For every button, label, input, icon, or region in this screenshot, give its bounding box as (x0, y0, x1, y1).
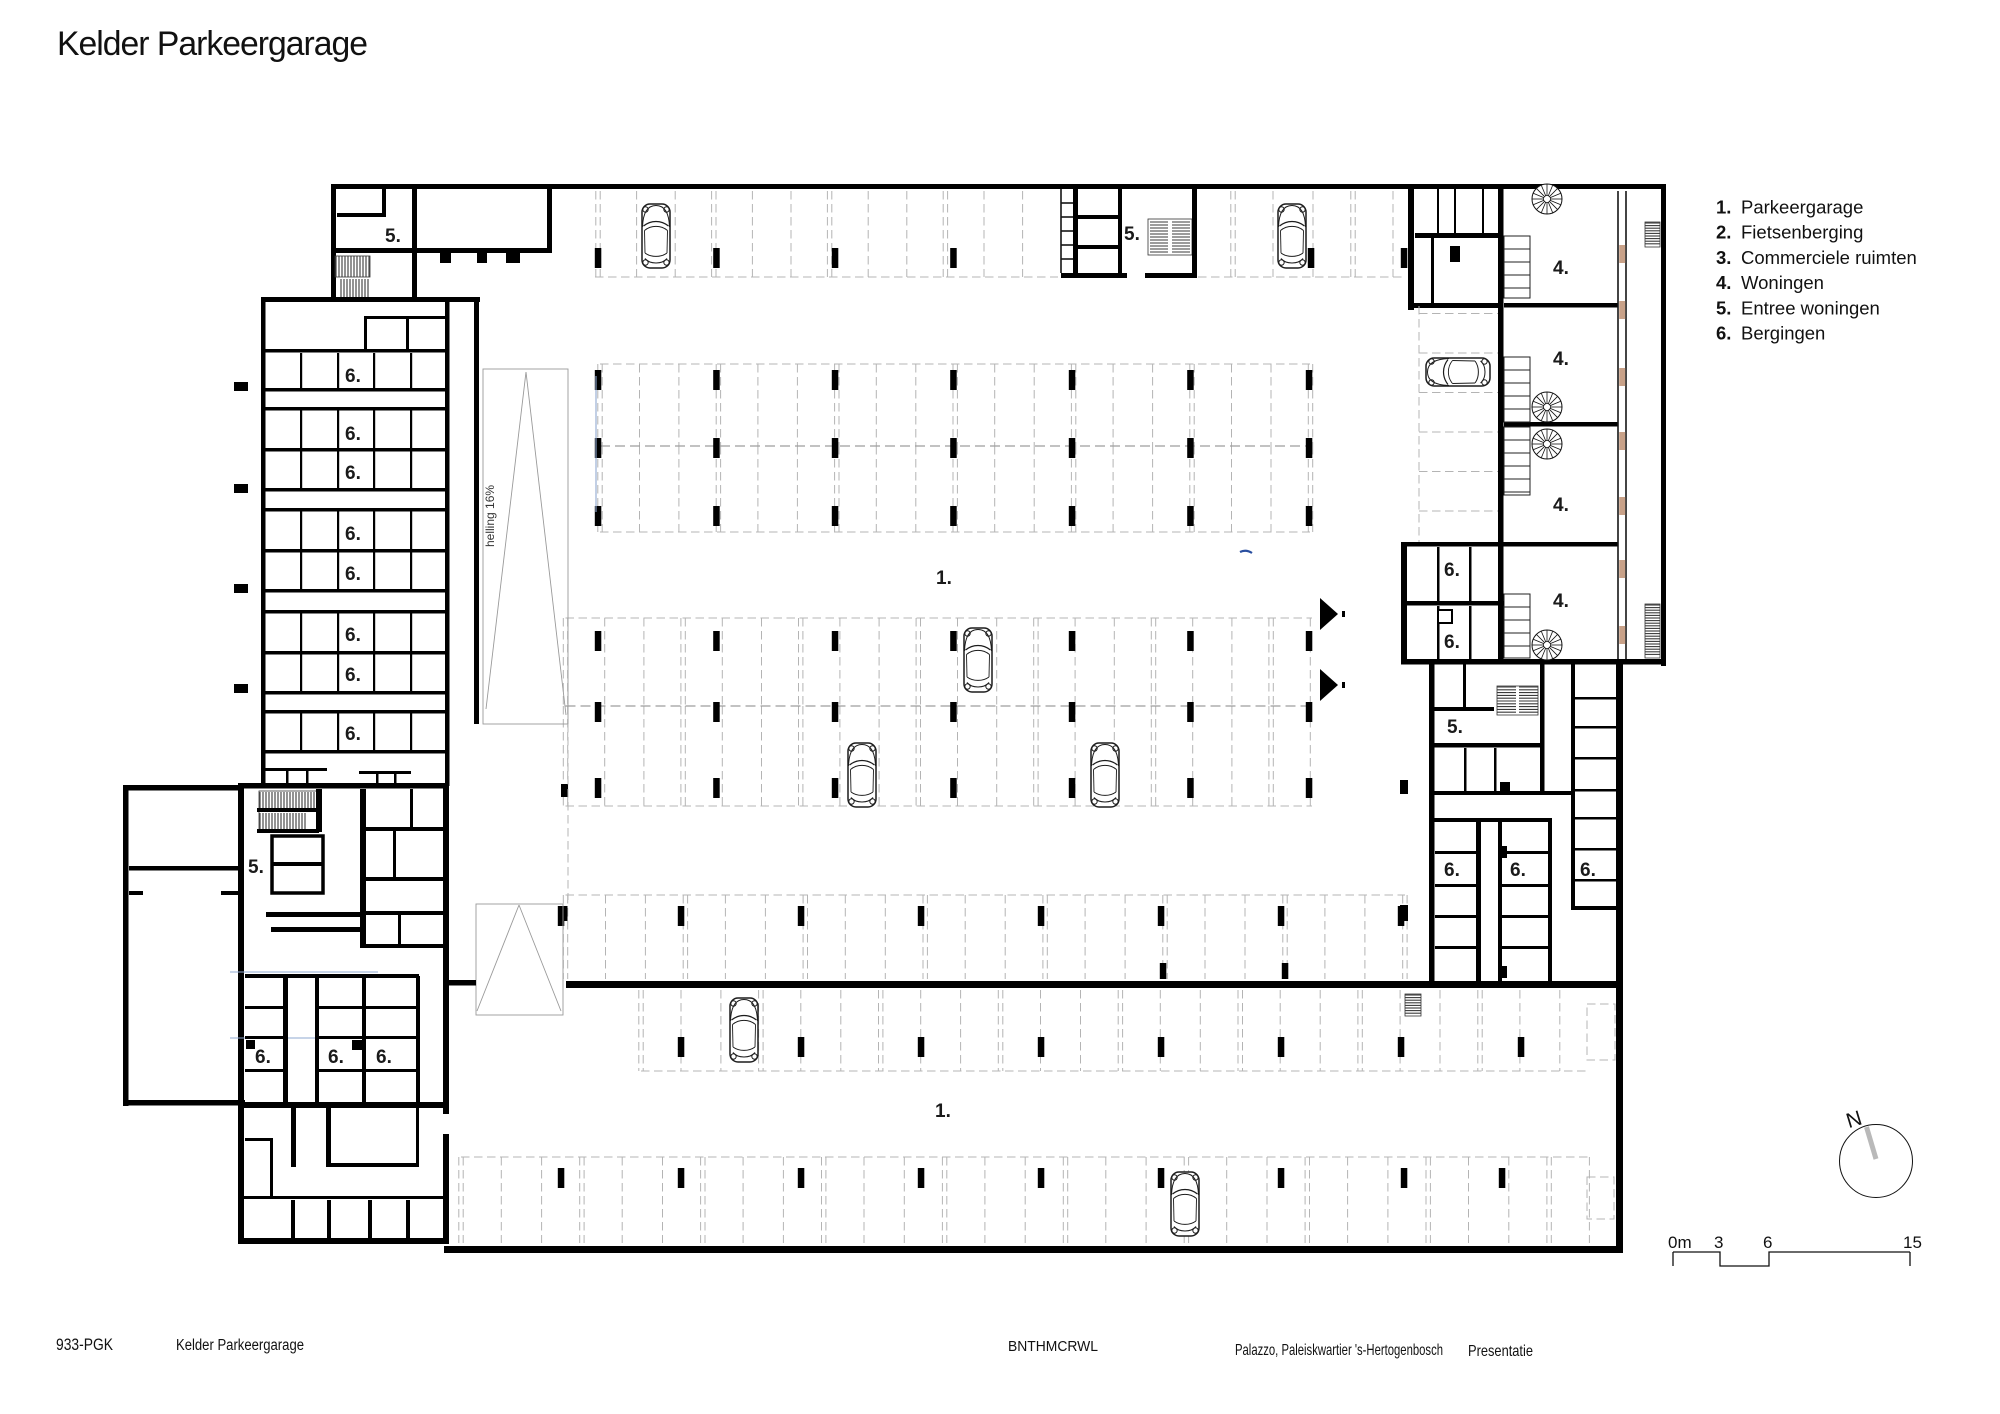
svg-text:6.: 6. (345, 724, 361, 745)
svg-text:6.: 6. (345, 564, 361, 585)
svg-text:Bergingen: Bergingen (1741, 323, 1825, 344)
svg-text:6: 6 (1763, 1233, 1772, 1252)
svg-text:6.: 6. (345, 424, 361, 445)
svg-text:6.: 6. (345, 524, 361, 545)
svg-text:Woningen: Woningen (1741, 272, 1824, 293)
svg-text:6.: 6. (345, 665, 361, 686)
svg-text:Parkeergarage: Parkeergarage (1741, 197, 1863, 218)
svg-text:1.: 1. (936, 568, 952, 589)
svg-text:6.: 6. (345, 366, 361, 387)
svg-text:6.: 6. (1510, 860, 1526, 881)
svg-text:4.: 4. (1716, 272, 1731, 293)
svg-text:4.: 4. (1553, 591, 1569, 612)
svg-text:Kelder Parkeergarage: Kelder Parkeergarage (57, 25, 367, 63)
svg-text:5.: 5. (385, 226, 401, 247)
svg-text:2.: 2. (1716, 222, 1731, 243)
svg-text:5.: 5. (248, 857, 264, 878)
svg-text:1.: 1. (1716, 197, 1731, 218)
svg-text:0m: 0m (1668, 1233, 1692, 1252)
svg-text:helling 16%: helling 16% (483, 485, 497, 547)
svg-text:933-PGK: 933-PGK (56, 1336, 113, 1354)
svg-text:3.: 3. (1716, 247, 1731, 268)
svg-text:Kelder Parkeergarage: Kelder Parkeergarage (176, 1337, 304, 1354)
svg-text:6.: 6. (1444, 632, 1460, 653)
svg-text:6.: 6. (255, 1047, 271, 1068)
svg-text:Fietsenberging: Fietsenberging (1741, 222, 1863, 243)
svg-text:Entree woningen: Entree woningen (1741, 297, 1880, 318)
svg-text:6.: 6. (376, 1047, 392, 1068)
svg-text:6.: 6. (345, 463, 361, 484)
svg-text:4.: 4. (1553, 495, 1569, 516)
svg-text:Presentatie: Presentatie (1468, 1343, 1533, 1360)
svg-text:Commerciele ruimten: Commerciele ruimten (1741, 247, 1917, 268)
svg-text:1.: 1. (935, 1101, 951, 1122)
svg-text:6.: 6. (1444, 860, 1460, 881)
svg-text:Palazzo, Paleiskwartier 's-Her: Palazzo, Paleiskwartier 's-Hertogenbosch (1235, 1342, 1443, 1359)
svg-text:5.: 5. (1124, 224, 1140, 245)
svg-text:6.: 6. (345, 625, 361, 646)
svg-text:6.: 6. (328, 1047, 344, 1068)
svg-text:6.: 6. (1716, 323, 1731, 344)
svg-text:4.: 4. (1553, 349, 1569, 370)
svg-text:5.: 5. (1447, 717, 1463, 738)
svg-text:15: 15 (1903, 1233, 1922, 1252)
svg-text:4.: 4. (1553, 258, 1569, 279)
svg-text:6.: 6. (1580, 860, 1596, 881)
svg-text:BNTHMCRWL: BNTHMCRWL (1008, 1339, 1098, 1355)
svg-text:5.: 5. (1716, 297, 1731, 318)
svg-text:6.: 6. (1444, 560, 1460, 581)
svg-text:3: 3 (1714, 1233, 1723, 1252)
